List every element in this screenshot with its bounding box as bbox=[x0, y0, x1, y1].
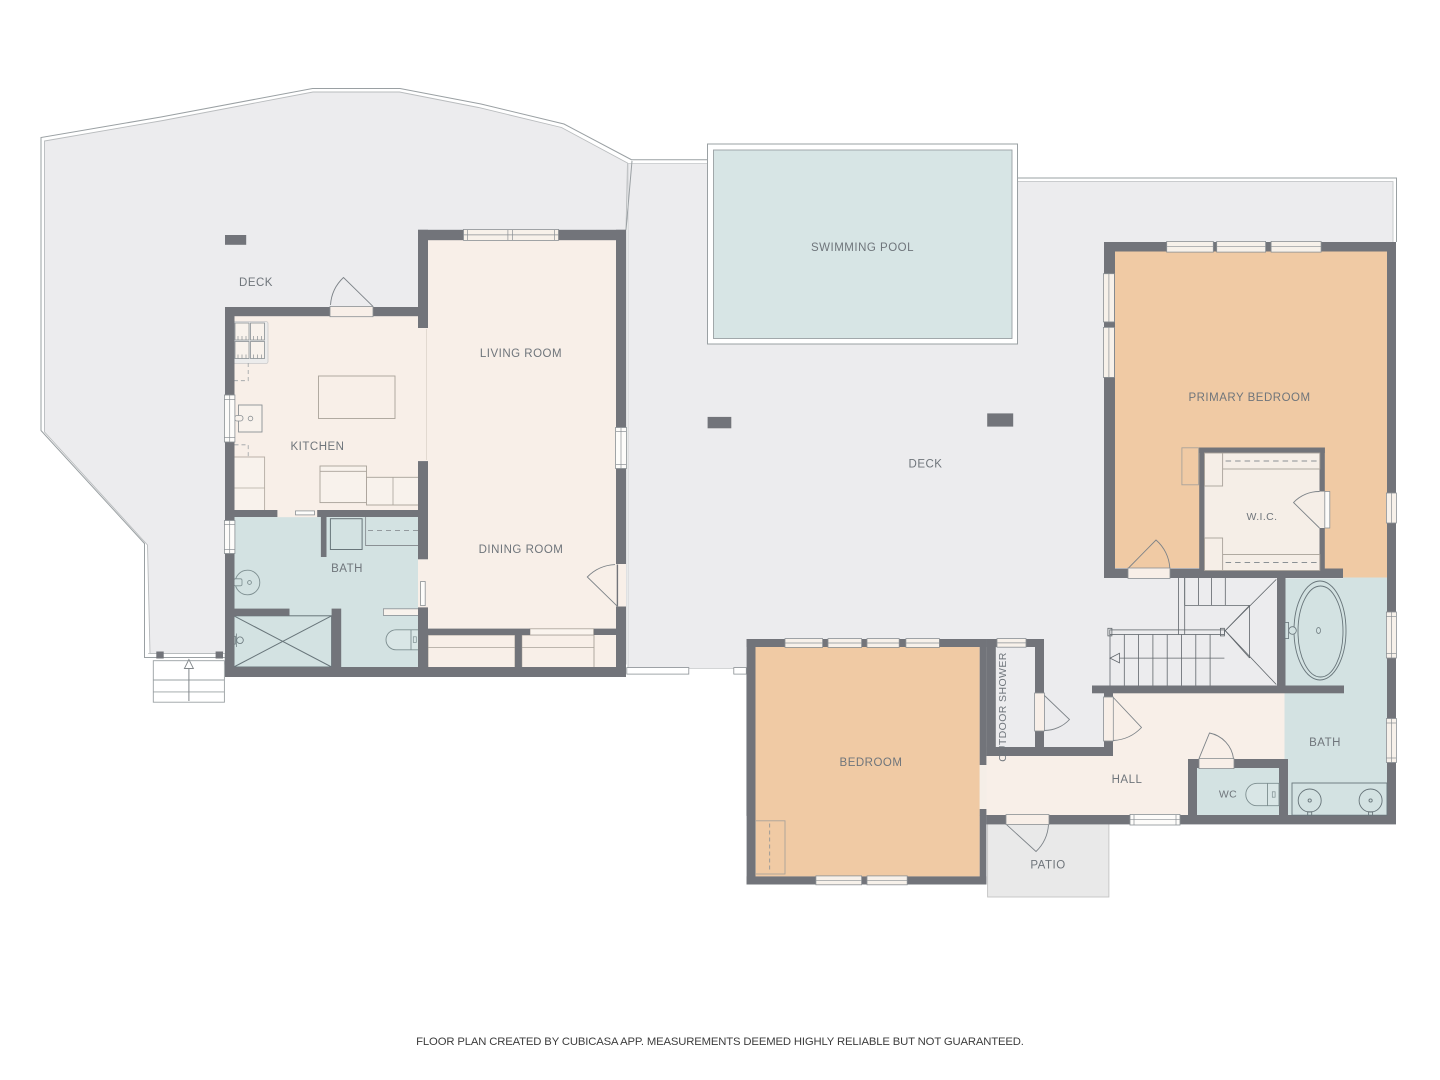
svg-text:OUTDOOR SHOWER: OUTDOOR SHOWER bbox=[997, 652, 1009, 761]
svg-text:BEDROOM: BEDROOM bbox=[840, 757, 903, 769]
svg-text:PRIMARY BEDROOM: PRIMARY BEDROOM bbox=[1188, 392, 1310, 404]
svg-text:DINING ROOM: DINING ROOM bbox=[479, 544, 564, 556]
svg-text:BATH: BATH bbox=[331, 563, 363, 575]
svg-text:PATIO: PATIO bbox=[1030, 860, 1065, 872]
svg-text:FLOOR PLAN CREATED BY CUBICASA: FLOOR PLAN CREATED BY CUBICASA APP. MEAS… bbox=[416, 1036, 1024, 1048]
svg-text:DECK: DECK bbox=[909, 459, 943, 471]
svg-text:WC: WC bbox=[1219, 789, 1237, 801]
svg-text:DECK: DECK bbox=[239, 277, 273, 289]
svg-text:HALL: HALL bbox=[1112, 774, 1143, 786]
svg-text:W.I.C.: W.I.C. bbox=[1247, 511, 1278, 523]
svg-text:SWIMMING POOL: SWIMMING POOL bbox=[811, 242, 914, 254]
svg-text:KITCHEN: KITCHEN bbox=[291, 441, 345, 453]
svg-text:BATH: BATH bbox=[1309, 737, 1341, 749]
svg-text:LIVING ROOM: LIVING ROOM bbox=[480, 348, 562, 360]
